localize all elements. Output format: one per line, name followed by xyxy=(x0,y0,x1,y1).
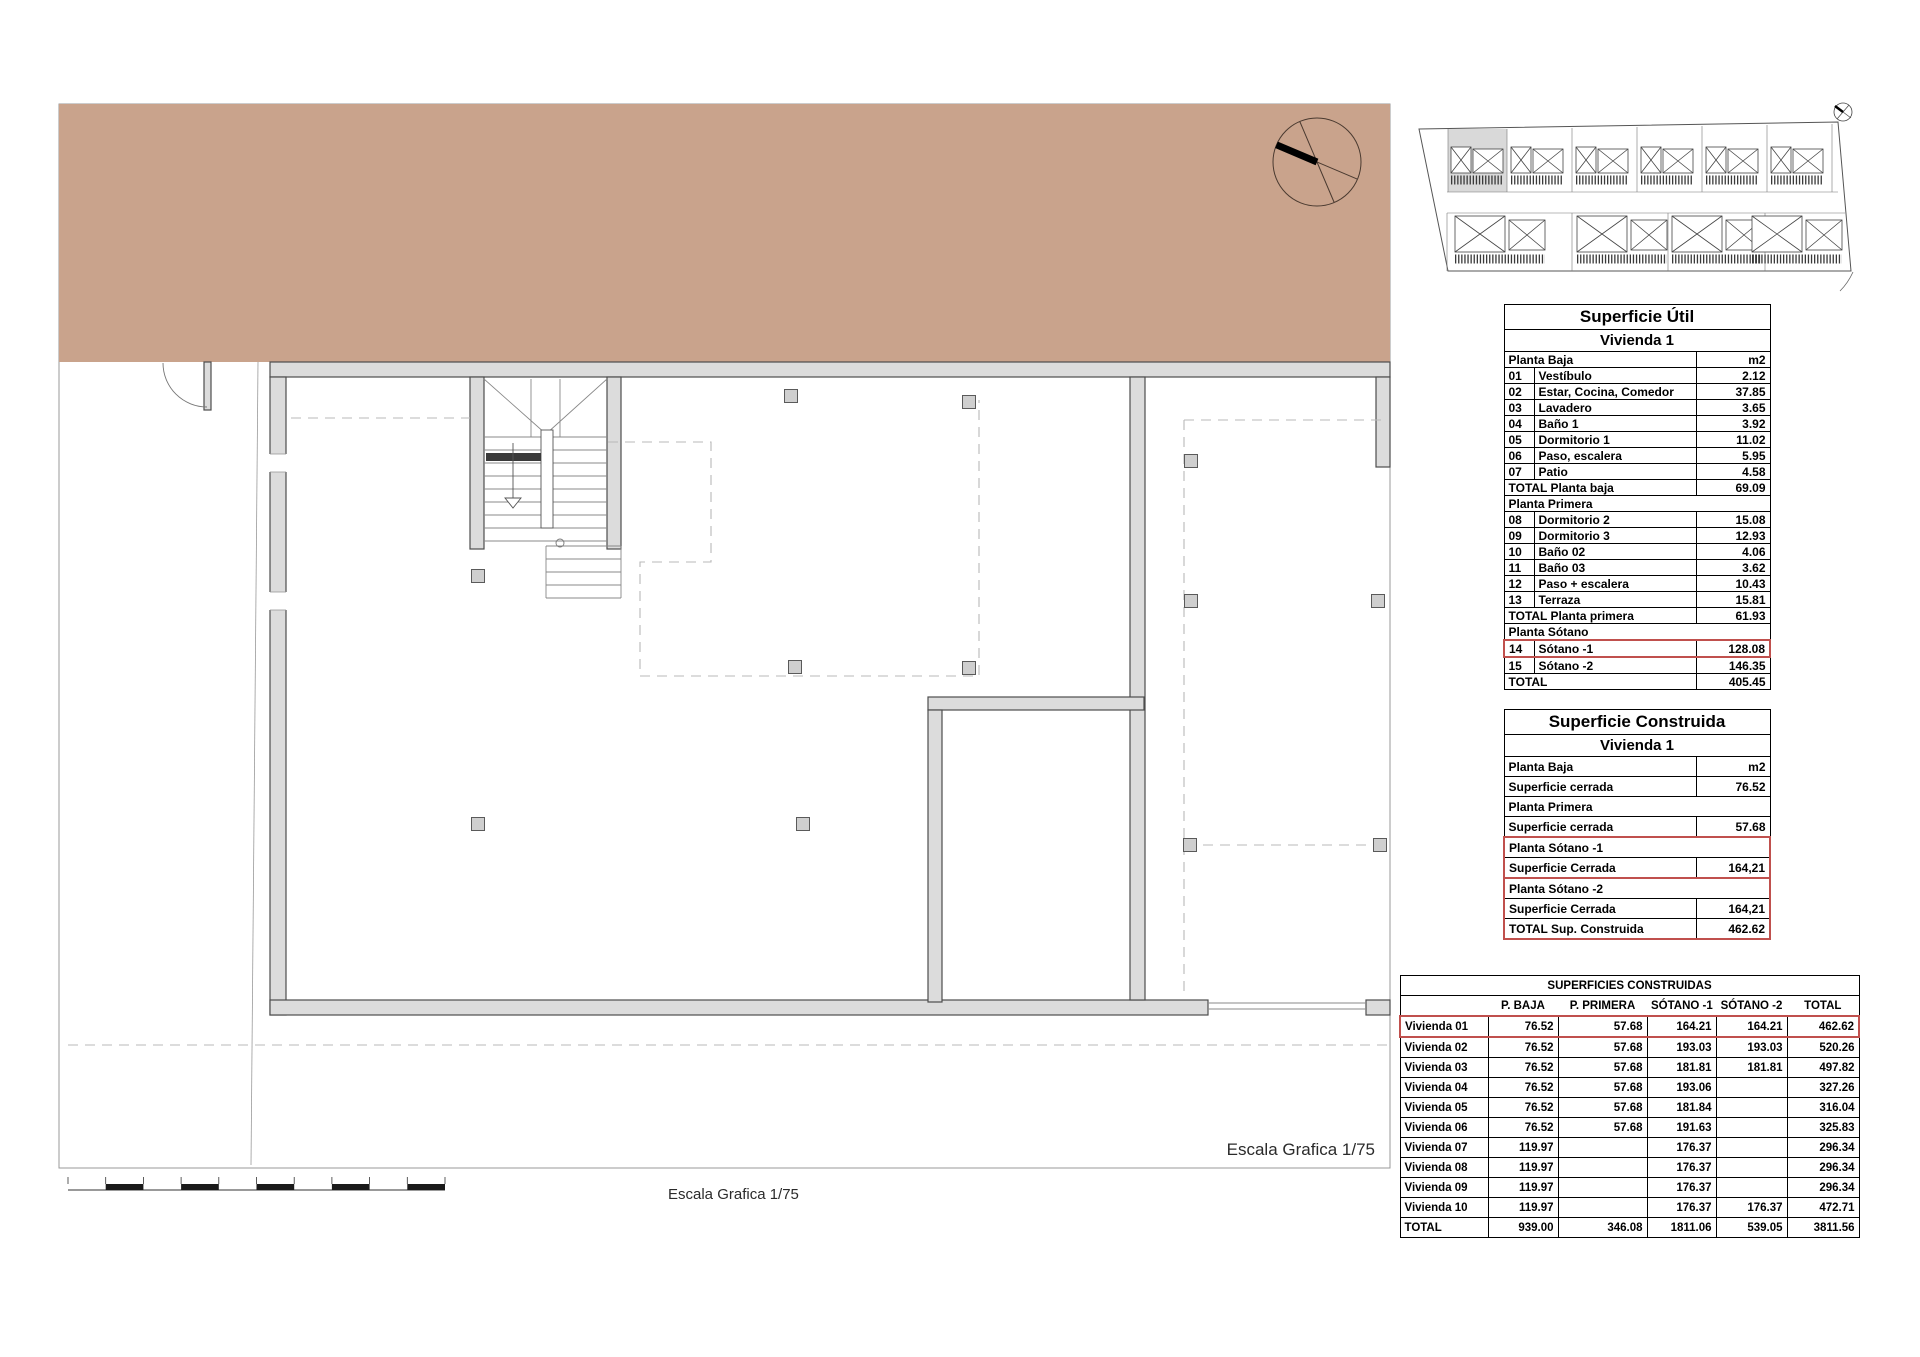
table-cell: Baño 02 xyxy=(1534,544,1696,560)
table-cell: 57.68 xyxy=(1558,1037,1647,1058)
superficies-construidas-table: SUPERFICIES CONSTRUIDAS P. BAJAP. PRIMER… xyxy=(1399,975,1860,1238)
table-cell: 15.08 xyxy=(1696,512,1770,528)
table-cell: 11.02 xyxy=(1696,432,1770,448)
table-cell xyxy=(1716,1138,1787,1158)
table-cell: 296.34 xyxy=(1787,1178,1859,1198)
table-row: 13Terraza15.81 xyxy=(1504,592,1770,608)
table-cell: 164.21 xyxy=(1647,1016,1716,1037)
table-cell: 3.92 xyxy=(1696,416,1770,432)
table-cell: Baño 1 xyxy=(1534,416,1696,432)
table-cell: Vivienda 06 xyxy=(1400,1118,1488,1138)
table-cell: Estar, Cocina, Comedor xyxy=(1534,384,1696,400)
table-title: Superficie Útil xyxy=(1504,305,1770,330)
table-row: Vivienda 07119.97176.37296.34 xyxy=(1400,1138,1859,1158)
table-cell: 01 xyxy=(1504,368,1534,384)
table-row: TOTAL Planta primera61.93 xyxy=(1504,608,1770,624)
table-cell: 164.21 xyxy=(1716,1016,1787,1037)
column xyxy=(797,818,810,831)
table-cell: 5.95 xyxy=(1696,448,1770,464)
table-cell: 2.12 xyxy=(1696,368,1770,384)
table-cell: Vivienda 05 xyxy=(1400,1098,1488,1118)
table-subtitle-row: Vivienda 1 xyxy=(1504,330,1770,352)
column xyxy=(789,661,802,674)
table-cell: Superficie Cerrada xyxy=(1504,858,1696,879)
table-cell: 176.37 xyxy=(1647,1138,1716,1158)
table-cell: 05 xyxy=(1504,432,1534,448)
column xyxy=(1185,455,1198,468)
table-cell: 57.68 xyxy=(1558,1016,1647,1037)
table-row: 08Dormitorio 215.08 xyxy=(1504,512,1770,528)
table-cell: 128.08 xyxy=(1696,640,1770,657)
table-row: 10Baño 024.06 xyxy=(1504,544,1770,560)
table-cell: Vivienda 10 xyxy=(1400,1198,1488,1218)
superficie-util-table: Superficie Útil Vivienda 1 Planta Bajam2… xyxy=(1503,304,1771,690)
table-title-row: SUPERFICIES CONSTRUIDAS xyxy=(1400,976,1859,996)
table-cell: 14 xyxy=(1504,640,1534,657)
scale-label: Escala Grafica 1/75 xyxy=(1140,1140,1375,1160)
door-leaf xyxy=(204,362,211,410)
table-row: 05Dormitorio 111.02 xyxy=(1504,432,1770,448)
column xyxy=(963,396,976,409)
table-cell: 119.97 xyxy=(1488,1178,1558,1198)
dashed-projections xyxy=(68,400,1388,1045)
table-cell: 472.71 xyxy=(1787,1198,1859,1218)
scale-bar xyxy=(68,1177,445,1190)
table-row: Vivienda 0676.5257.68191.63325.83 xyxy=(1400,1118,1859,1138)
table-row: 09Dormitorio 312.93 xyxy=(1504,528,1770,544)
table-cell: 3.65 xyxy=(1696,400,1770,416)
table-cell: 539.05 xyxy=(1716,1218,1787,1238)
table-title: Superficie Construida xyxy=(1504,710,1770,735)
table-cell: TOTAL xyxy=(1400,1218,1488,1238)
table-cell: 12.93 xyxy=(1696,528,1770,544)
table-cell: 176.37 xyxy=(1716,1198,1787,1218)
table-row: Vivienda 0476.5257.68193.06327.26 xyxy=(1400,1078,1859,1098)
door-swing-arc xyxy=(163,363,207,407)
table-cell: 462.62 xyxy=(1696,919,1770,940)
table-cell: Vivienda 03 xyxy=(1400,1058,1488,1078)
table-cell: Superficie cerrada xyxy=(1504,777,1696,797)
column xyxy=(963,662,976,675)
table-row: 06Paso, escalera5.95 xyxy=(1504,448,1770,464)
table-cell: 09 xyxy=(1504,528,1534,544)
table-subtitle: Vivienda 1 xyxy=(1504,330,1770,352)
table-cell: Planta Primera xyxy=(1504,496,1770,512)
staircase xyxy=(484,379,621,598)
table-cell: 405.45 xyxy=(1696,674,1770,690)
table-cell: 4.06 xyxy=(1696,544,1770,560)
table-cell: 76.52 xyxy=(1696,777,1770,797)
walls xyxy=(204,362,1390,1015)
table-cell: TOTAL Planta baja xyxy=(1504,480,1696,496)
table-cell: 57.68 xyxy=(1696,817,1770,838)
table-cell: Dormitorio 1 xyxy=(1534,432,1696,448)
table-title-row: Superficie Construida xyxy=(1504,710,1770,735)
table-cell xyxy=(1400,996,1488,1017)
table-cell: Vivienda 01 xyxy=(1400,1016,1488,1037)
table-cell: Planta Baja xyxy=(1504,352,1696,368)
table-row: 15Sótano -2146.35 xyxy=(1504,657,1770,674)
table-row: Vivienda 0276.5257.68193.03193.03520.26 xyxy=(1400,1037,1859,1058)
table-cell: 76.52 xyxy=(1488,1078,1558,1098)
table-title: SUPERFICIES CONSTRUIDAS xyxy=(1400,976,1859,996)
table-row: 02Estar, Cocina, Comedor37.85 xyxy=(1504,384,1770,400)
table-cell: 193.06 xyxy=(1647,1078,1716,1098)
superficie-construida-table: Superficie Construida Vivienda 1 Planta … xyxy=(1503,709,1771,940)
table-cell: 76.52 xyxy=(1488,1118,1558,1138)
table-cell: 03 xyxy=(1504,400,1534,416)
table-cell: 11 xyxy=(1504,560,1534,576)
scale-label: Escala Grafica 1/75 xyxy=(668,1186,799,1203)
table-cell: 69.09 xyxy=(1696,480,1770,496)
table-row: TOTAL Sup. Construida462.62 xyxy=(1504,919,1770,940)
table-header-row: P. BAJAP. PRIMERASÓTANO -1SÓTANO -2TOTAL xyxy=(1400,996,1859,1017)
table-row: Superficie cerrada76.52 xyxy=(1504,777,1770,797)
table-row: 14Sótano -1128.08 xyxy=(1504,640,1770,657)
table-row: Planta Primera xyxy=(1504,496,1770,512)
table-cell: 37.85 xyxy=(1696,384,1770,400)
table-cell: Vivienda 07 xyxy=(1400,1138,1488,1158)
table-row: Superficie cerrada57.68 xyxy=(1504,817,1770,838)
table-cell: P. PRIMERA xyxy=(1558,996,1647,1017)
table-cell: 176.37 xyxy=(1647,1158,1716,1178)
table-cell: SÓTANO -1 xyxy=(1647,996,1716,1017)
table-cell: 939.00 xyxy=(1488,1218,1558,1238)
table-cell: 4.58 xyxy=(1696,464,1770,480)
column xyxy=(1372,595,1385,608)
column xyxy=(1185,595,1198,608)
table-row: Planta Bajam2 xyxy=(1504,352,1770,368)
table-row: Vivienda 0176.5257.68164.21164.21462.62 xyxy=(1400,1016,1859,1037)
table-cell: 520.26 xyxy=(1787,1037,1859,1058)
stair-rail xyxy=(541,430,553,528)
table-cell: Patio xyxy=(1534,464,1696,480)
table-cell: 13 xyxy=(1504,592,1534,608)
table-row: 03Lavadero3.65 xyxy=(1504,400,1770,416)
column xyxy=(785,390,798,403)
table-cell xyxy=(1716,1098,1787,1118)
table-cell: 119.97 xyxy=(1488,1198,1558,1218)
table-cell: 146.35 xyxy=(1696,657,1770,674)
opening-threshold xyxy=(1208,1003,1366,1009)
table-cell: 3811.56 xyxy=(1787,1218,1859,1238)
table-cell: Vivienda 09 xyxy=(1400,1178,1488,1198)
table-subtitle-row: Vivienda 1 xyxy=(1504,735,1770,757)
column xyxy=(1374,839,1387,852)
table-cell: 57.68 xyxy=(1558,1098,1647,1118)
table-cell: 181.81 xyxy=(1647,1058,1716,1078)
thumbnail-north-arrow-icon xyxy=(1834,103,1852,121)
table-cell: 1811.06 xyxy=(1647,1218,1716,1238)
table-cell: 119.97 xyxy=(1488,1158,1558,1178)
table-cell: 327.26 xyxy=(1787,1078,1859,1098)
table-cell: TOTAL Sup. Construida xyxy=(1504,919,1696,940)
table-cell: 07 xyxy=(1504,464,1534,480)
table-cell: 193.03 xyxy=(1647,1037,1716,1058)
table-row: 01Vestíbulo2.12 xyxy=(1504,368,1770,384)
table-cell: 176.37 xyxy=(1647,1198,1716,1218)
floor-plan xyxy=(68,362,1390,1165)
table-row: Vivienda 09119.97176.37296.34 xyxy=(1400,1178,1859,1198)
table-row: Superficie Cerrada164,21 xyxy=(1504,858,1770,879)
table-cell: Planta Sótano -2 xyxy=(1504,878,1770,899)
table-cell: 57.68 xyxy=(1558,1058,1647,1078)
table-cell xyxy=(1558,1178,1647,1198)
column xyxy=(472,570,485,583)
table-cell xyxy=(1558,1138,1647,1158)
table-cell: 76.52 xyxy=(1488,1016,1558,1037)
table-cell: 76.52 xyxy=(1488,1037,1558,1058)
table-row: 11Baño 033.62 xyxy=(1504,560,1770,576)
table-cell: 06 xyxy=(1504,448,1534,464)
table-cell: Lavadero xyxy=(1534,400,1696,416)
table-cell: 3.62 xyxy=(1696,560,1770,576)
table-cell: Vestíbulo xyxy=(1534,368,1696,384)
table-row: TOTAL939.00346.081811.06539.053811.56 xyxy=(1400,1218,1859,1238)
column xyxy=(472,818,485,831)
table-cell: 193.03 xyxy=(1716,1037,1787,1058)
table-row: 07Patio4.58 xyxy=(1504,464,1770,480)
table-subtitle: Vivienda 1 xyxy=(1504,735,1770,757)
table-row: Planta Sótano -1 xyxy=(1504,837,1770,858)
table-cell: 12 xyxy=(1504,576,1534,592)
table-row: Planta Primera xyxy=(1504,797,1770,817)
table-cell: Sótano -1 xyxy=(1534,640,1696,657)
table-cell: Planta Baja xyxy=(1504,757,1696,777)
drawing-sheet: { "sheet": { "scale_label": "Escala Graf… xyxy=(0,0,1920,1357)
table-cell: 164,21 xyxy=(1696,858,1770,879)
table-cell: m2 xyxy=(1696,757,1770,777)
table-cell: Vivienda 08 xyxy=(1400,1158,1488,1178)
table-cell xyxy=(1716,1158,1787,1178)
sheet: Escala Grafica 1/75 Escala Grafica 1/75 … xyxy=(0,0,1920,1357)
site-plan-thumbnail xyxy=(1419,103,1853,291)
table-cell xyxy=(1558,1158,1647,1178)
table-cell: 04 xyxy=(1504,416,1534,432)
table-row: Planta Sótano -2 xyxy=(1504,878,1770,899)
table-cell: 10.43 xyxy=(1696,576,1770,592)
table-cell: Dormitorio 3 xyxy=(1534,528,1696,544)
table-cell: 462.62 xyxy=(1787,1016,1859,1037)
table-row: Vivienda 10119.97176.37176.37472.71 xyxy=(1400,1198,1859,1218)
table-cell: Baño 03 xyxy=(1534,560,1696,576)
table-cell: Vivienda 04 xyxy=(1400,1078,1488,1098)
table-cell: 15 xyxy=(1504,657,1534,674)
table-cell: 02 xyxy=(1504,384,1534,400)
table-cell: 316.04 xyxy=(1787,1098,1859,1118)
table-row: Planta Sótano xyxy=(1504,624,1770,641)
table-row: Vivienda 0576.5257.68181.84316.04 xyxy=(1400,1098,1859,1118)
table-row: 04Baño 13.92 xyxy=(1504,416,1770,432)
table-row: TOTAL Planta baja69.09 xyxy=(1504,480,1770,496)
table-cell xyxy=(1716,1178,1787,1198)
table-cell: 497.82 xyxy=(1787,1058,1859,1078)
table-row: Planta Bajam2 xyxy=(1504,757,1770,777)
terrain-band xyxy=(59,104,1390,362)
table-cell: TOTAL xyxy=(1787,996,1859,1017)
table-cell xyxy=(1716,1078,1787,1098)
table-row: Vivienda 0376.5257.68181.81181.81497.82 xyxy=(1400,1058,1859,1078)
table-cell: Planta Primera xyxy=(1504,797,1770,817)
table-cell: Terraza xyxy=(1534,592,1696,608)
table-cell: m2 xyxy=(1696,352,1770,368)
table-cell: Planta Sótano xyxy=(1504,624,1770,641)
table-cell: 181.81 xyxy=(1716,1058,1787,1078)
table-cell: Superficie Cerrada xyxy=(1504,899,1696,919)
table-cell: 15.81 xyxy=(1696,592,1770,608)
table-row: TOTAL405.45 xyxy=(1504,674,1770,690)
table-cell: SÓTANO -2 xyxy=(1716,996,1787,1017)
table-cell: Paso, escalera xyxy=(1534,448,1696,464)
table-row: 12Paso + escalera10.43 xyxy=(1504,576,1770,592)
stair-wall-bold xyxy=(486,453,541,461)
table-cell: TOTAL Planta primera xyxy=(1504,608,1696,624)
table-cell: 08 xyxy=(1504,512,1534,528)
table-cell: 10 xyxy=(1504,544,1534,560)
table-cell xyxy=(1716,1118,1787,1138)
table-cell: Sótano -2 xyxy=(1534,657,1696,674)
table-cell: Dormitorio 2 xyxy=(1534,512,1696,528)
table-cell: 76.52 xyxy=(1488,1058,1558,1078)
table-cell: 164,21 xyxy=(1696,899,1770,919)
table-cell: 325.83 xyxy=(1787,1118,1859,1138)
road-edge-curve xyxy=(1840,272,1853,291)
table-cell: TOTAL xyxy=(1504,674,1696,690)
table-cell: 191.63 xyxy=(1647,1118,1716,1138)
table-cell: 76.52 xyxy=(1488,1098,1558,1118)
table-cell: 119.97 xyxy=(1488,1138,1558,1158)
column xyxy=(1184,839,1197,852)
table-cell: 176.37 xyxy=(1647,1178,1716,1198)
table-cell: 346.08 xyxy=(1558,1218,1647,1238)
table-cell: Superficie cerrada xyxy=(1504,817,1696,838)
table-title-row: Superficie Útil xyxy=(1504,305,1770,330)
table-cell: 61.93 xyxy=(1696,608,1770,624)
table-row: Superficie Cerrada164,21 xyxy=(1504,899,1770,919)
table-cell: 57.68 xyxy=(1558,1118,1647,1138)
stair-direction-arrow xyxy=(505,498,521,508)
table-cell: P. BAJA xyxy=(1488,996,1558,1017)
table-cell: 296.34 xyxy=(1787,1158,1859,1178)
table-cell: 296.34 xyxy=(1787,1138,1859,1158)
table-row: Vivienda 08119.97176.37296.34 xyxy=(1400,1158,1859,1178)
table-cell: Vivienda 02 xyxy=(1400,1037,1488,1058)
table-cell: 57.68 xyxy=(1558,1078,1647,1098)
table-cell: Planta Sótano -1 xyxy=(1504,837,1770,858)
table-cell: 181.84 xyxy=(1647,1098,1716,1118)
table-cell: Paso + escalera xyxy=(1534,576,1696,592)
table-cell xyxy=(1558,1198,1647,1218)
